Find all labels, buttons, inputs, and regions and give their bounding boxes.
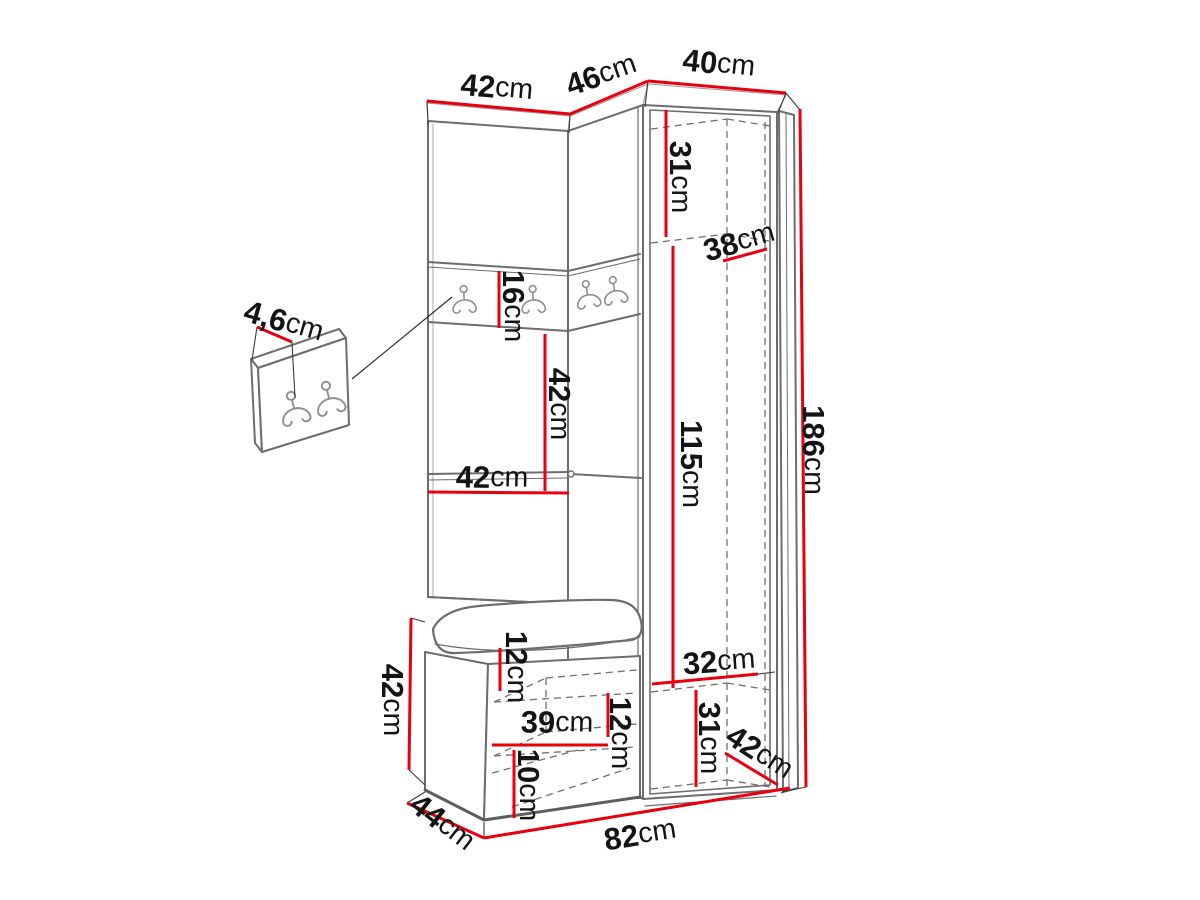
dim-label-cabinet-inner-height: 115cm <box>675 420 710 508</box>
ext-line <box>252 327 257 360</box>
dim-label-bench-top-offset: 12cm <box>500 631 535 704</box>
dim-label-left-section-width: 42cm <box>455 459 528 495</box>
dim-label-cabinet-inner-width: 32cm <box>682 641 757 681</box>
ext-line <box>409 770 425 785</box>
dim-label-cabinet-upper-shelf: 31cm <box>664 141 699 214</box>
dim-label-middle-niche-height: 42cm <box>543 368 578 441</box>
furniture-dimension-drawing: 42cm46cm40cm31cm38cm4,6cm16cm42cm42cm115… <box>0 0 1200 900</box>
dim-label-bench-shelf-gap: 12cm <box>604 697 639 770</box>
dim-label-total-height: 186cm <box>797 405 832 495</box>
diagram-canvas: 42cm46cm40cm31cm38cm4,6cm16cm42cm42cm115… <box>0 0 1200 900</box>
shelf-knob <box>568 471 574 477</box>
dim-label-top-left-width: 42cm <box>459 66 534 107</box>
dim-label-cabinet-lower-height: 31cm <box>693 702 728 775</box>
wardrobe-left-panel <box>428 121 568 604</box>
dim-label-panel-thickness: 4,6cm <box>240 293 328 349</box>
ext-line <box>411 618 425 622</box>
dim-label-bench-height: 42cm <box>376 664 411 737</box>
dim-label-top-right-width: 40cm <box>681 42 757 84</box>
dim-label-bench-inner-width: 39cm <box>520 704 593 740</box>
ext-line <box>786 93 800 110</box>
dim-label-hook-strip-height: 16cm <box>497 270 532 343</box>
dim-label-bench-lower-gap: 10cm <box>512 749 547 822</box>
